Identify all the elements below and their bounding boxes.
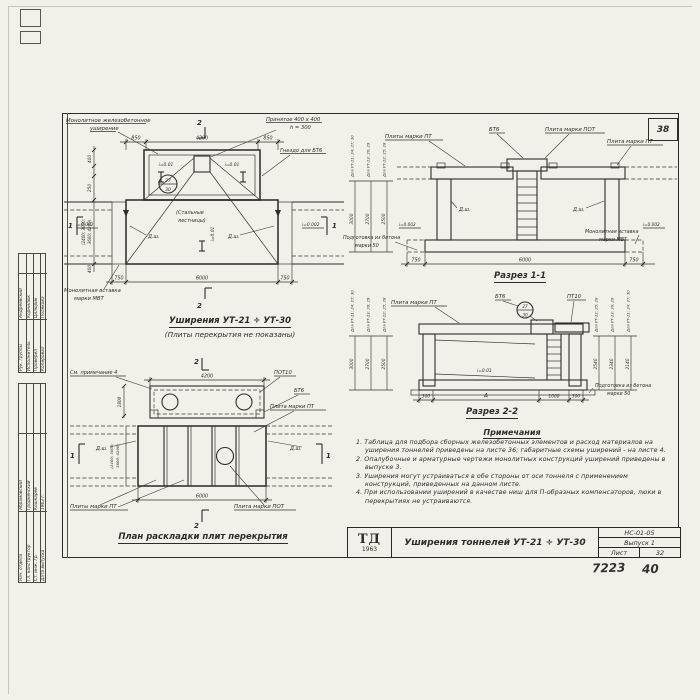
section-2-2-title: Разрез 2-2: [442, 407, 542, 419]
sheet-row: Лист 32: [599, 547, 680, 557]
roof-slab-right: [541, 167, 625, 179]
dim-value: 2500: [381, 213, 387, 224]
concrete-base: [411, 390, 595, 395]
callout-label: марки 50: [607, 391, 630, 397]
section-structure: [411, 320, 595, 395]
dim-value: 2140: [625, 358, 631, 369]
cut-mark-2-bottom: 2: [197, 288, 212, 310]
callout-label: Монолитное железобетонное: [66, 118, 151, 124]
callout-label: Монолитная вставка: [64, 288, 121, 294]
signature-row: Гл. конструктор Гродненский: [26, 384, 33, 582]
dim-bottom: 750 6000 750: [106, 264, 298, 285]
callout-label: марки 50: [355, 243, 379, 249]
dim-value: 750: [411, 258, 420, 264]
slope-label: i=0.01: [477, 368, 492, 374]
signature-row: Копировал Полякова: [40, 254, 47, 372]
handwritten-number-2: 40: [642, 562, 659, 576]
signature-table-upper: Рук. группы Андреевский Исполнитель Корн…: [18, 253, 46, 373]
dim-value: 1800: [117, 396, 122, 407]
slope-label: i=0.01: [210, 226, 216, 241]
archive-stamp-box-2: [20, 31, 41, 44]
slope-label-right: i=0.002: [643, 222, 665, 228]
slab-layout-title: План раскладки плит перекрытия: [88, 532, 318, 544]
joint-label: Д.ш.: [572, 207, 585, 213]
callout-label: Плита марки ПТ: [270, 404, 315, 410]
signature-row: Нач. отдела Абрамовский: [19, 384, 26, 582]
callout-label: Подготовка из бетона: [595, 383, 651, 389]
callout-bt6: БТ6: [489, 127, 523, 158]
detail-number: 30: [522, 313, 528, 318]
logo-td: ТД: [358, 533, 381, 546]
signature-sign: [34, 384, 40, 434]
signature-name: Андреевский: [19, 274, 26, 320]
section-1-1-title: Разрез 1-1: [470, 271, 570, 283]
type-range-label: Для УТ-23; 26; 29: [610, 297, 615, 333]
dim-value: 2700: [365, 213, 371, 224]
signature-row: Ст. инж. гр. Кошкарёв: [33, 384, 40, 582]
callout-label: Плита марки ПТ: [391, 300, 437, 306]
cut-label: 1: [70, 452, 75, 460]
signature-name: Цилюрик: [34, 274, 40, 320]
callout-label: Принятое 400 х 400: [266, 117, 321, 123]
dim-value: 850: [131, 136, 140, 142]
callout-label: уширение: [89, 126, 119, 132]
plan-title: Уширения УТ-21 ÷ УТ-30: [132, 316, 328, 328]
callout-widening: Монолитное железобетонное уширение: [66, 118, 158, 154]
signature-sign: [19, 384, 26, 434]
issue-number: Выпуск 1: [599, 537, 680, 547]
joint-label: Д.ш.: [458, 207, 471, 213]
detail-number: 27: [165, 178, 171, 184]
callout-label: Гнездо для БТ6: [280, 148, 323, 154]
signature-role: Копировал: [41, 320, 47, 372]
dim-value: 2540: [593, 358, 599, 369]
sheet-edge-top: [8, 6, 692, 7]
dim-value: 3000: [349, 358, 355, 369]
callout-pot10: ПОТ10: [260, 370, 296, 392]
signature-role: Гл. конструктор: [27, 512, 33, 582]
dim-value: 300: [422, 394, 431, 400]
callout-label: Плита марки ПОТ: [545, 127, 596, 133]
dim-value: 850: [263, 136, 272, 142]
type-dim-columns-left: Для УТ-21; 24; 27; 30 Для УТ-23; 26; 29 …: [349, 290, 393, 390]
notes-header: Примечания: [356, 428, 668, 437]
ladders-label: лестницы): [177, 218, 206, 224]
section-2-2-drawing: Для УТ-21; 24; 27; 30 Для УТ-23; 26; 29 …: [343, 290, 673, 408]
signature-role: Рук. группы: [19, 320, 26, 372]
cut-mark-2-bottom: 2: [194, 510, 209, 530]
signature-sign: [19, 254, 26, 274]
callout-pt: Плита марки ПТ: [254, 404, 326, 432]
cut-mark-1-left: 1: [70, 444, 85, 464]
dim-value: 3600; 4200): [87, 219, 92, 244]
dim-bottom: 750 6000 750: [401, 252, 655, 267]
floor-slab: [425, 240, 625, 252]
hatch-opening: [217, 448, 234, 465]
wall-left: [423, 334, 435, 386]
dim-bottom: 6000: [132, 486, 272, 503]
dim-value: 300: [572, 394, 581, 400]
callout-bt6: БТ6: [495, 294, 518, 306]
wall-right: [569, 334, 581, 386]
dim-value: (2400; 3000;: [81, 218, 86, 245]
signature-name: Кошкарёв: [34, 434, 40, 512]
type-range-label: Для УТ-22; 25; 28: [594, 297, 599, 333]
slope-label: i=0.01: [159, 162, 174, 168]
dim-value: 2340: [609, 358, 615, 369]
callout-label: ПОТ10: [274, 370, 292, 376]
signature-name: Полякова: [41, 274, 47, 320]
dim-value: 6000: [196, 276, 208, 282]
callout-insert: Монолитная вставка марки МВТ: [585, 229, 639, 244]
signature-row: Дата выпуска 1963 г.: [40, 384, 47, 582]
joint-label: Д.ш.: [147, 234, 160, 240]
callout-pt-slabs: Плиты марки ПТ: [385, 134, 465, 166]
callout-label: Подготовка из бетона: [343, 235, 400, 241]
cut-mark-2-top: 2: [197, 119, 205, 138]
ladders-label: (Стальные: [176, 210, 204, 216]
detail-mark-circle: 27 30: [517, 302, 537, 321]
signature-name: Абрамовский: [19, 434, 26, 512]
dim-left: 1800 (2400; 3000; 3600; 4200): [109, 384, 126, 486]
cut-label: 2: [194, 358, 199, 366]
dim-value: 750: [114, 276, 123, 282]
joint-label: Д.ш.: [227, 234, 240, 240]
plan-drawing: 2 2 1 1: [64, 114, 344, 310]
roof-slab-left: [431, 167, 513, 179]
dim-value: 2500: [381, 358, 387, 369]
callout-label: Монолитная вставка: [585, 229, 639, 235]
dim-bottom: 300 А 1000 300: [413, 390, 589, 403]
leader-line: [451, 201, 457, 208]
slope-label: i=0.002: [302, 222, 320, 228]
callout-label: марки МВТ: [599, 237, 628, 243]
callout-label: БТ6: [294, 388, 305, 394]
section-1-1-drawing: Для УТ-21; 24; 27; 30 Для УТ-23; 26; 29 …: [343, 123, 681, 273]
base-extension-left: [407, 240, 425, 252]
signature-sign: [27, 254, 33, 274]
section-structure: [397, 159, 677, 252]
callout-label: Плита марки ПОТ: [234, 504, 285, 510]
detail-number: 30: [165, 187, 171, 193]
joint-arrow-right: [275, 210, 281, 217]
cut-label: 1: [326, 452, 331, 460]
dim-value: 4200: [201, 374, 213, 380]
signature-sign: [27, 384, 33, 434]
callout-label: БТ6: [495, 294, 506, 300]
signature-name: Корнилюк: [27, 274, 33, 320]
callout-label: Плиты марки ПТ: [385, 134, 432, 140]
note-item: 3. Уширения могут устраиваться в обе сто…: [356, 473, 668, 490]
callout-base: Подготовка из бетона марки 50: [343, 235, 417, 250]
type-range-label: Для УТ-21; 24; 27; 30: [350, 290, 355, 333]
slope-label: i=0.002: [643, 222, 660, 227]
joint-arrow-left: [123, 210, 129, 217]
slope-label: i=0.01: [225, 162, 240, 168]
cut-label: 2: [194, 522, 199, 530]
title-block-logo: ТД 1963: [348, 528, 392, 557]
handwritten-number-1: 7223: [592, 561, 626, 576]
callout-pot: Плита марки ПОТ: [230, 466, 296, 510]
title-block-codes: НС-01-05 Выпуск 1 Лист 32: [598, 528, 680, 557]
sheet-word: Лист: [599, 548, 639, 557]
joint-label: Д.ш.: [95, 446, 108, 452]
callout-pt: Плита марки ПТ: [391, 300, 459, 323]
cut-mark-1-right: 1: [321, 217, 337, 235]
leader-line: [268, 441, 302, 447]
slope-label-right: i=0.002: [302, 222, 324, 228]
archive-stamp-box: [20, 9, 41, 27]
dim-value: 3000: [349, 213, 355, 224]
type-range-label: Для УТ-21; 24; 27; 30: [350, 135, 355, 178]
type-range-label: Для УТ-21; 24; 27; 30: [626, 290, 631, 333]
callout-pot: Плита марки ПОТ: [545, 127, 605, 158]
dim-value: 1000: [548, 394, 559, 400]
floor-slab: [419, 380, 587, 390]
note-item: 4. При использовании уширений в качестве…: [356, 489, 668, 506]
signature-role: Дата выпуска: [41, 512, 47, 582]
leader-line: [240, 226, 274, 235]
type-range-label: Для УТ-22; 25; 28: [382, 142, 387, 178]
type-range-label: Для УТ-22; 25; 28: [382, 297, 387, 333]
document-code: НС-01-05: [599, 528, 680, 537]
signature-table-lower: Нач. отдела Абрамовский Гл. конструктор …: [18, 383, 46, 583]
bt6-column: [517, 171, 537, 240]
dim-value: 400: [87, 265, 93, 273]
dim-value: 750: [629, 258, 638, 264]
dim-left: 400 250 (2400; 3000; 3600; 4200) 400: [81, 146, 96, 273]
dim-value: 6000: [519, 258, 531, 264]
callout-label: ПТ10: [567, 294, 582, 300]
callout-label: h = 300: [290, 125, 312, 131]
callout-socket: Гнездо для БТ6: [262, 148, 326, 176]
signature-role: Проверил: [34, 320, 40, 372]
dim-value: 750: [280, 276, 289, 282]
signature-name: 1963 г.: [41, 434, 47, 512]
plan-subtitle: (Плиты перекрытия не показаны): [120, 330, 340, 339]
cut-label: 1: [68, 222, 73, 230]
note-item: 2. Опалубочные и арматурные чертежи моно…: [356, 456, 668, 473]
callout-label: См. примечание 4: [70, 370, 117, 376]
signature-row: Рук. группы Андреевский: [19, 254, 26, 372]
dim-top: 4200: [144, 374, 270, 387]
callout-note-ref: См. примечание 4: [70, 370, 152, 389]
sheet-number: 32: [639, 548, 680, 557]
signature-role: Нач. отдела: [19, 512, 26, 582]
cut-label: 1: [332, 222, 337, 230]
pot10-block: [150, 386, 264, 418]
callout-label: марки МВТ: [74, 296, 105, 302]
dim-value: 2700: [365, 358, 371, 369]
leader-line: [130, 226, 146, 235]
cut-mark-2-top: 2: [194, 358, 209, 370]
leader-line: [586, 201, 604, 208]
bt6-block: [531, 320, 553, 334]
logo-year: 1963: [362, 546, 377, 553]
dim-value: А: [483, 394, 488, 400]
base-extension-right: [625, 240, 643, 252]
slab-layout-drawing: 2 2 1 1 4200: [68, 352, 336, 530]
signature-sign: [41, 254, 47, 274]
hatch-opening: [194, 156, 210, 172]
signature-row: Проверил Цилюрик: [33, 254, 40, 372]
callout-pt10: ПТ10: [567, 294, 586, 322]
signature-name: Гродненский: [27, 434, 33, 512]
callout-label: Плита марки ПТ: [607, 139, 653, 145]
dim-value: 400: [87, 155, 93, 163]
dim-top: 850 4200 850: [120, 136, 284, 151]
dim-value: 250: [87, 184, 93, 192]
drawing-title: Уширения тоннелей УТ-21 ÷ УТ-30: [392, 528, 598, 557]
sheet-edge-left: [8, 6, 9, 694]
cut-label: 2: [197, 119, 202, 127]
slope-label-left: i=0.002: [399, 222, 421, 228]
type-range-label: Для УТ-23; 26; 29: [366, 297, 371, 333]
type-dim-columns-right: Для УТ-22; 25; 28 Для УТ-23; 26; 29 Для …: [593, 290, 637, 390]
type-range-label: Для УТ-23; 26; 29: [366, 142, 371, 178]
dim-value: 6000: [196, 494, 208, 500]
signature-role: Ст. инж. гр.: [34, 512, 40, 582]
drawing-sheet: 38 Рук. группы Андреевский Исполнитель К…: [0, 0, 700, 700]
signature-sign: [34, 254, 40, 274]
dim-value: 3600; 4200): [115, 444, 120, 468]
note-item: 1. Таблица для подбора сборных железобет…: [356, 439, 668, 456]
callout-pt-right: Плита марки ПТ: [607, 139, 663, 165]
wall-left: [437, 179, 451, 240]
detail-mark-circle: 27 30: [159, 175, 177, 193]
notes-block: Примечания 1. Таблица для подбора сборны…: [356, 428, 668, 506]
slope-label: i=0.002: [399, 222, 416, 227]
cut-label: 2: [197, 302, 202, 310]
cut-mark-1-right: 1: [316, 444, 331, 464]
tunnel-barrels: [64, 202, 344, 264]
callout-label: БТ6: [489, 127, 500, 133]
dim-value: 4200: [196, 136, 208, 142]
signature-sign: [41, 384, 47, 434]
detail-number: 27: [522, 304, 528, 309]
signature-role: Исполнитель: [27, 320, 33, 372]
dim-value: (2400; 3000;: [109, 443, 114, 469]
signature-row: Исполнитель Корнилюк: [26, 254, 33, 372]
callout-label: Плиты марки ПТ: [70, 504, 117, 510]
title-block: ТД 1963 Уширения тоннелей УТ-21 ÷ УТ-30 …: [347, 527, 681, 558]
